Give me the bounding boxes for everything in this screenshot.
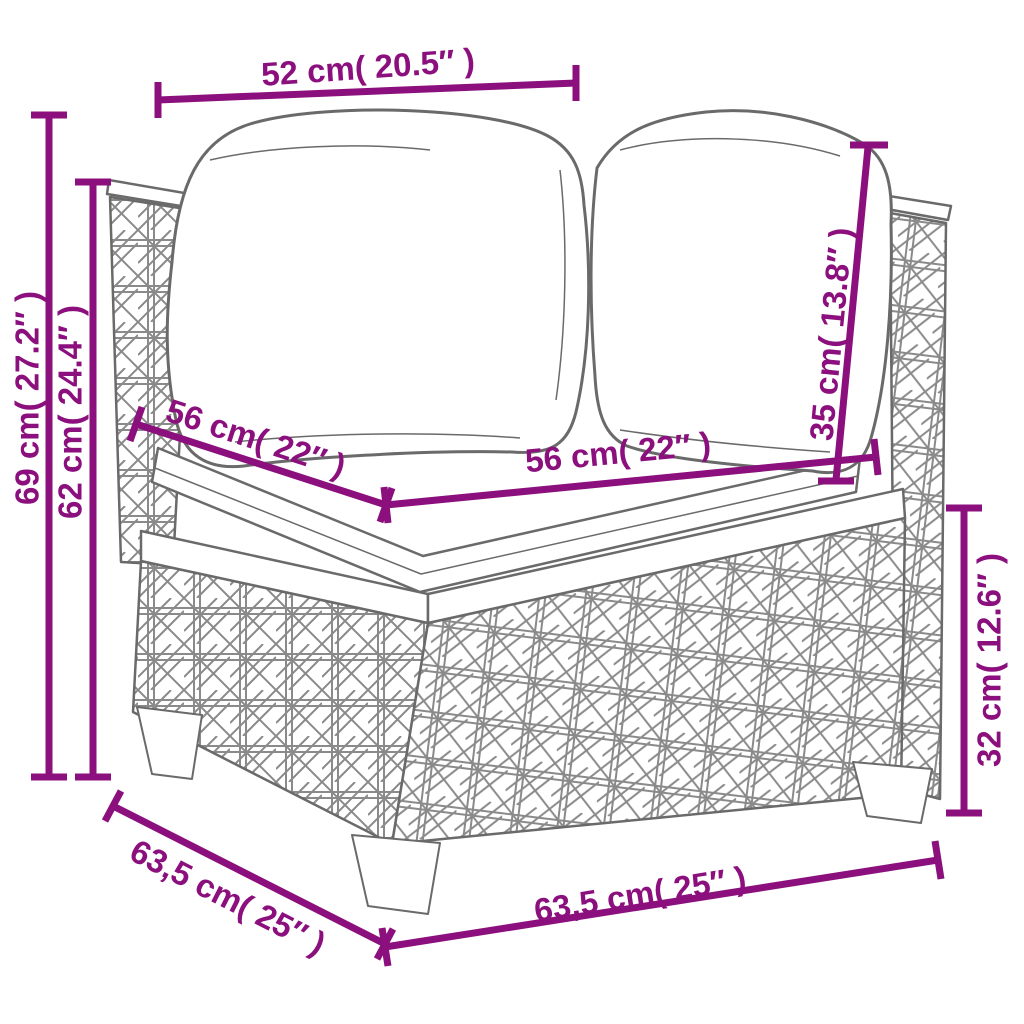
dim-label-arm-height: 62 cm( 24.4″ ) [54,305,87,519]
right-leg [853,762,932,823]
dim-label-total-height: 69 cm( 27.2″ ) [11,291,44,505]
diagram-canvas: 52 cm( 20.5″ ) 69 cm( 27.2″ ) 62 cm( 24.… [0,0,1024,1024]
left-leg [137,707,202,779]
front-leg [352,835,440,914]
dim-label-base-height: 32 cm( 12.6″ ) [973,553,1006,767]
